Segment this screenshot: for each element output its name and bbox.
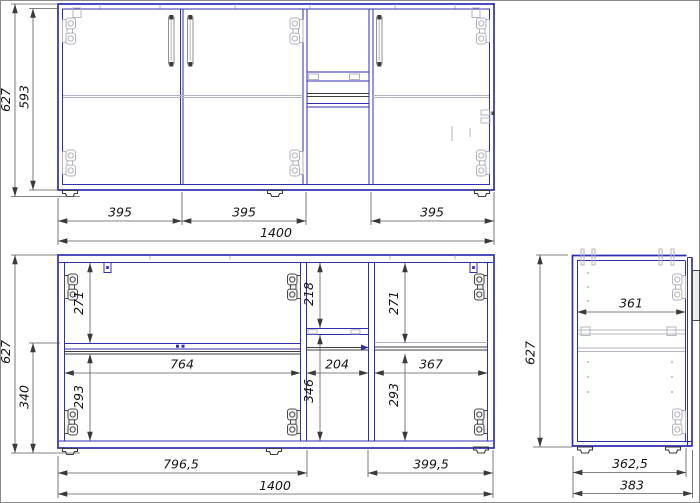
dim-carcass-height-total: 627 [0,340,13,364]
front-fitting-marks [73,5,495,142]
dim-carcass-center-inner-width: 204 [325,357,349,372]
feet-side [578,447,681,453]
dim-carcass-left-upper: 271 [71,291,86,315]
front-doors-outline [63,9,490,185]
side-internal-details [578,249,685,393]
hinge-icons-side [673,274,686,435]
drawing-sheet: 627 593 395 395 395 1400 [0,0,700,503]
dim-carcass-width-total: 1400 [259,478,291,493]
dim-carcass-right-outer-width: 399,5 [413,457,449,472]
dim-carcass-left-outer-width: 796,5 [163,457,199,472]
dim-side-inner-depth: 361 [619,296,643,311]
side-handle-icon [693,271,700,321]
dim-side-height-total: 627 [523,341,538,365]
dim-carcass-left-lower: 293 [71,385,86,409]
carcass-left-shelf [65,344,301,355]
carcass-center-shelf [307,329,369,351]
feet-front [63,191,490,197]
dim-front-height-total: 627 [0,88,13,112]
dim-front-height-body: 593 [17,85,32,109]
carcass-view: 627 340 271 293 218 346 271 293 764 204 … [0,255,494,498]
door-handle-icon [188,15,194,67]
dim-side-body-depth: 362,5 [612,456,648,471]
dim-front-door1-width: 395 [108,205,132,220]
side-view: 361 627 362,5 383 [523,249,700,498]
front-niche-shelves [307,72,369,107]
dim-carcass-right-inner-width: 367 [419,357,443,372]
carcass-fitting-marks [104,256,477,273]
dim-carcass-right-lower: 293 [386,383,401,407]
door-handle-icon [169,15,175,67]
drawing-canvas: 627 593 395 395 395 1400 [0,0,700,503]
front-shelf-line [63,96,489,98]
dim-carcass-right-upper: 271 [386,291,401,315]
carcass-right-shelf [375,343,488,351]
dim-carcass-height-base: 340 [17,385,32,409]
front-view: 627 593 395 395 395 1400 [0,4,495,245]
carcass-dimensions: 627 340 271 293 218 346 271 293 764 204 … [0,255,493,498]
dim-front-door3-width: 395 [420,205,444,220]
dim-carcass-center-upper: 218 [301,282,316,306]
dim-carcass-center-lower: 346 [301,379,316,403]
side-dimensions: 361 627 362,5 383 [523,255,693,498]
door-handle-icon [377,15,383,67]
dim-front-width-total: 1400 [260,225,292,240]
dim-carcass-left-inner-width: 764 [170,357,194,372]
dim-side-depth-total: 383 [620,478,644,493]
dim-front-door2-width: 395 [232,205,256,220]
